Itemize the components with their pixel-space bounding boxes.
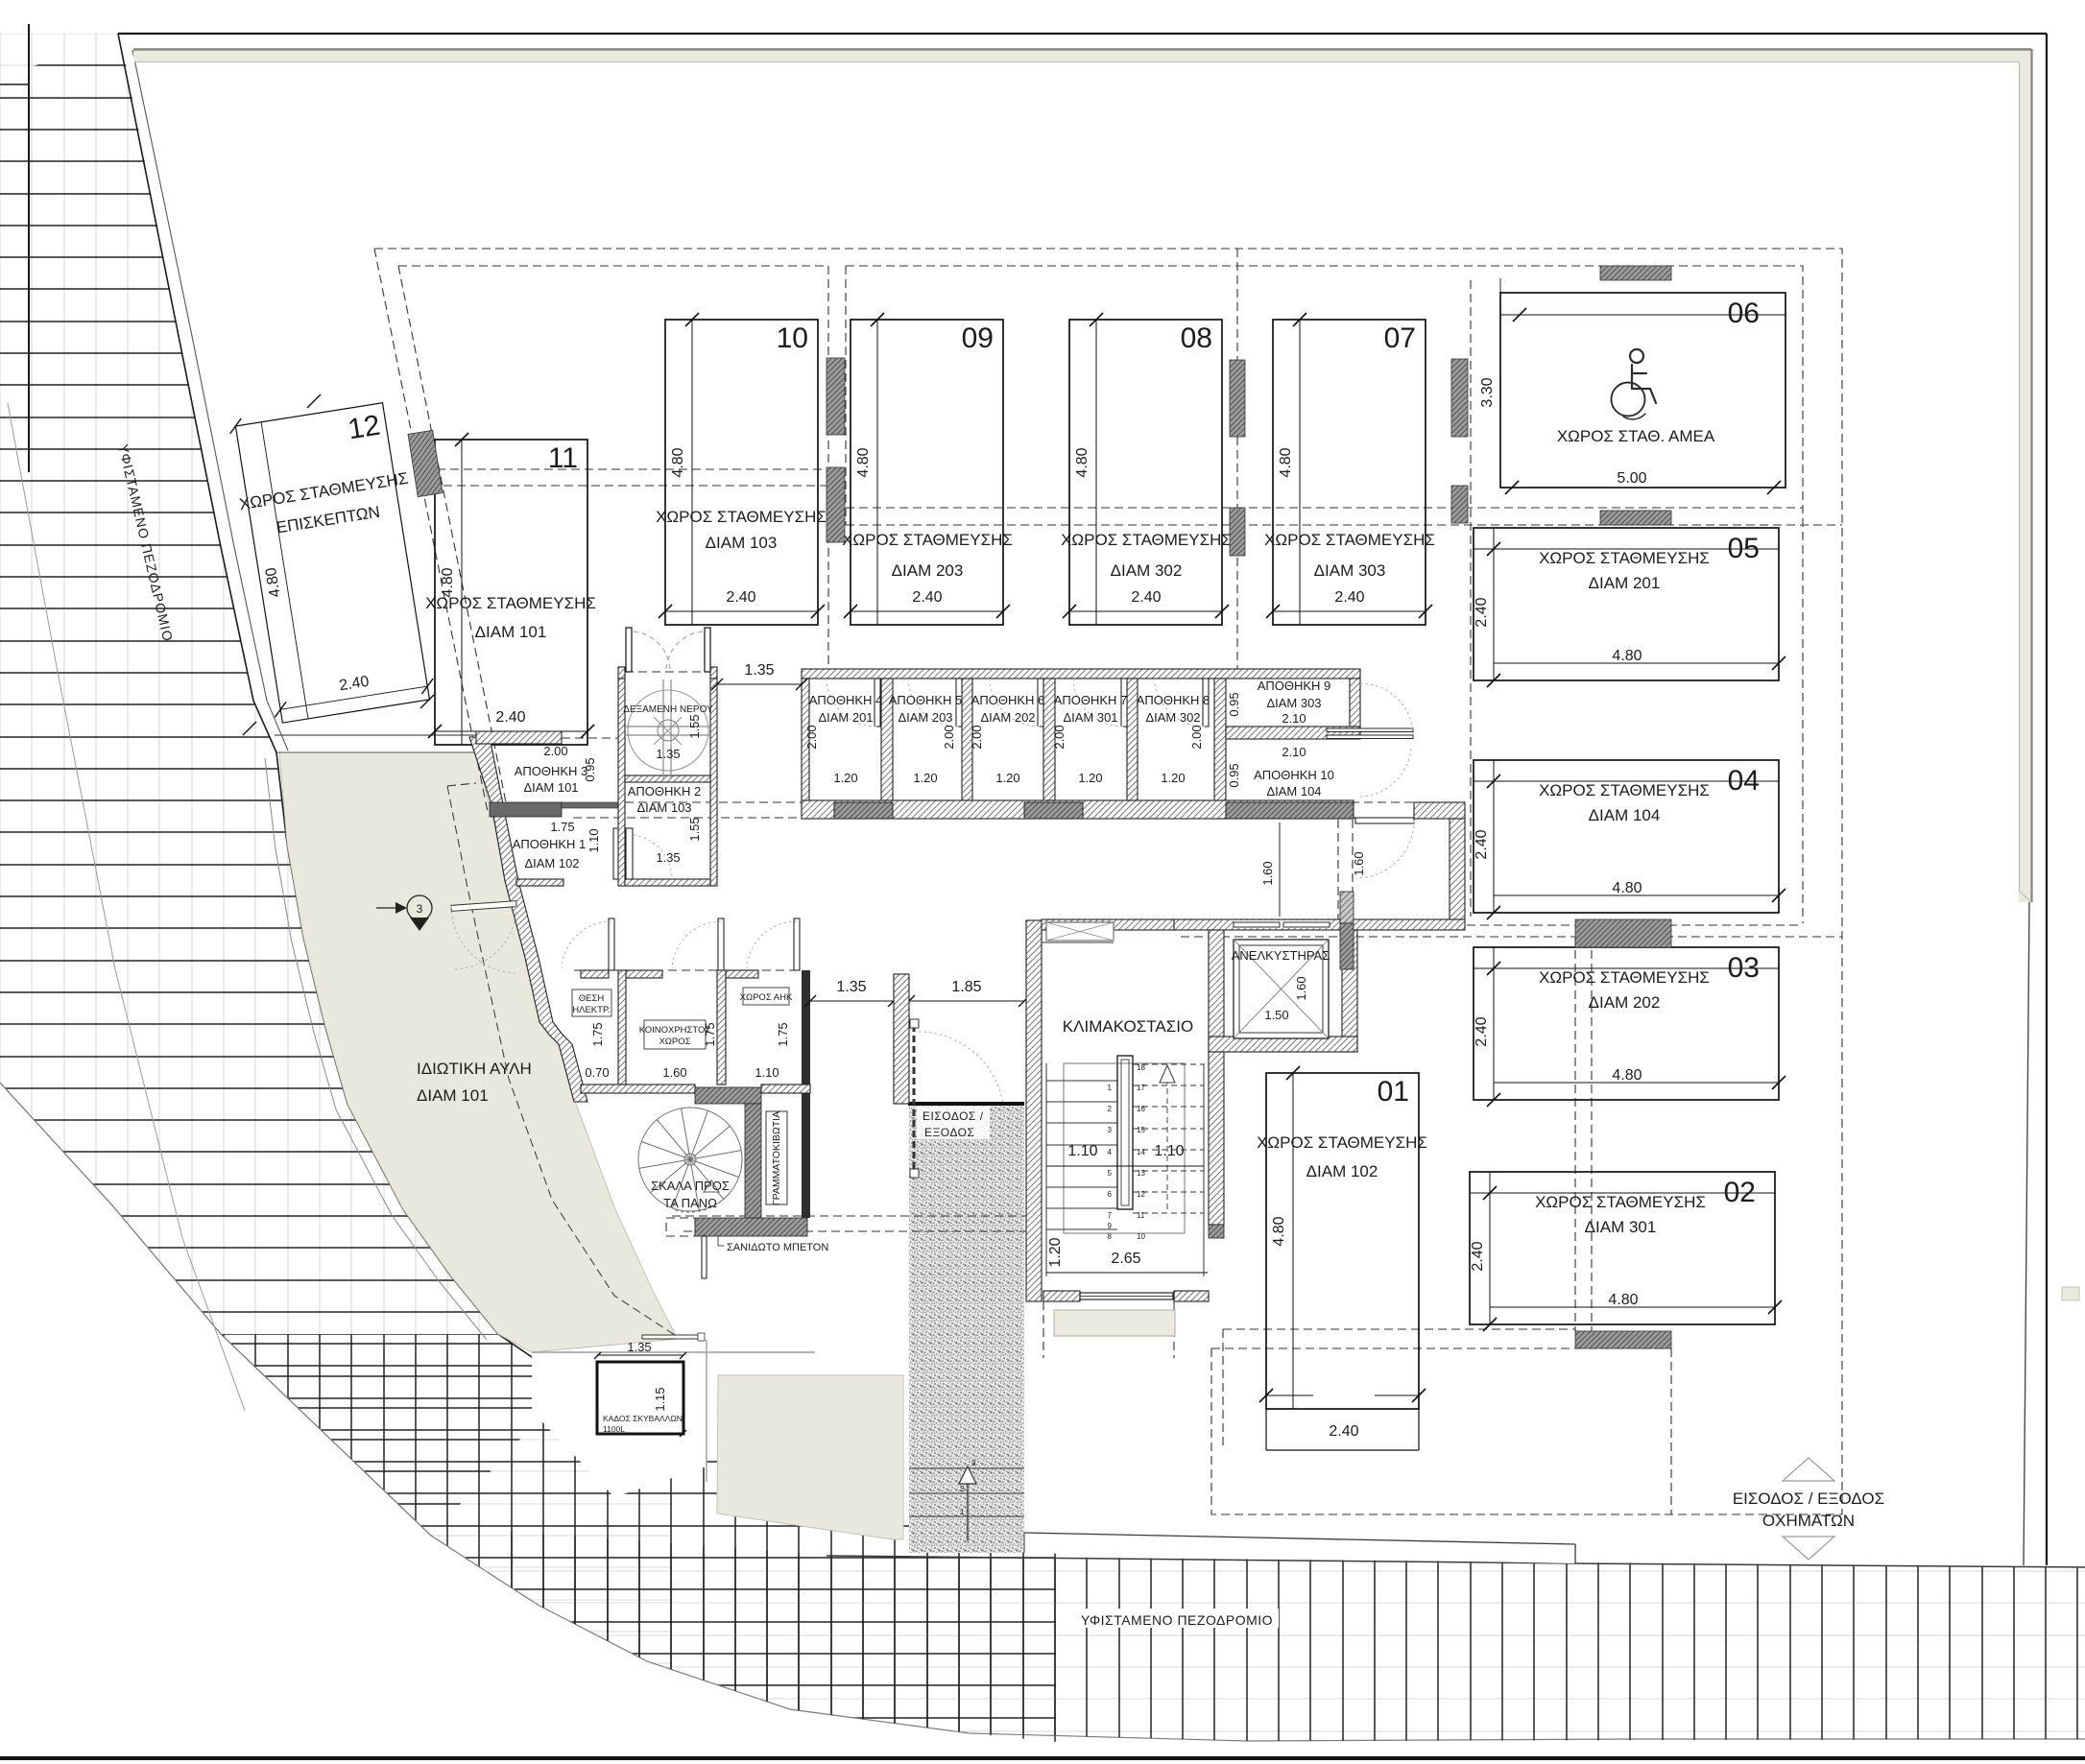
svg-text:1.60: 1.60 [1260,861,1275,885]
svg-text:1.10: 1.10 [755,1065,779,1080]
svg-text:2.40: 2.40 [1474,1016,1490,1046]
svg-text:11: 11 [1137,1211,1145,1220]
svg-text:ΥΦΙΣΤΑΜΕΝΟ ΠΕΖΟΔΡΟΜΙΟ: ΥΦΙΣΤΑΜΕΝΟ ΠΕΖΟΔΡΟΜΙΟ [1081,1612,1273,1628]
svg-text:3: 3 [417,902,423,916]
svg-text:2.40: 2.40 [912,589,942,606]
svg-text:ΔΙΑΜ 104: ΔΙΑΜ 104 [1266,784,1321,799]
svg-text:ΧΩΡΟΣ ΣΤΑΘΜΕΥΣΗΣ: ΧΩΡΟΣ ΣΤΑΘΜΕΥΣΗΣ [1535,1193,1706,1211]
svg-text:4.80: 4.80 [440,567,456,597]
svg-text:1.75: 1.75 [776,1022,790,1046]
svg-text:ΕΞΟΔΟΣ: ΕΞΟΔΟΣ [924,1126,974,1139]
svg-text:1.60: 1.60 [1294,976,1308,1000]
svg-text:1.35: 1.35 [836,979,866,995]
svg-text:ΔΙΑΜ 101: ΔΙΑΜ 101 [475,623,547,641]
svg-text:4.80: 4.80 [1271,1216,1287,1246]
svg-text:0.70: 0.70 [585,1065,609,1080]
svg-text:1.55: 1.55 [687,817,702,841]
svg-text:2.00: 2.00 [942,725,956,749]
svg-text:1.35: 1.35 [627,1340,651,1354]
svg-text:1.35: 1.35 [656,747,680,761]
svg-text:1.20: 1.20 [833,771,857,785]
svg-text:7: 7 [1108,1211,1113,1220]
svg-text:12: 12 [346,410,382,446]
svg-text:ΙΔΙΩΤΙΚΗ ΑΥΛΗ: ΙΔΙΩΤΙΚΗ ΑΥΛΗ [417,1060,532,1078]
svg-text:ΧΩΡΟΣ ΣΤΑΘΜΕΥΣΗΣ: ΧΩΡΟΣ ΣΤΑΘΜΕΥΣΗΣ [1539,781,1710,799]
svg-text:ΧΩΡΟΣ ΣΤΑΘΜΕΥΣΗΣ: ΧΩΡΟΣ ΣΤΑΘΜΕΥΣΗΣ [1257,1133,1427,1152]
svg-text:3.30: 3.30 [1479,377,1496,407]
svg-text:0.95: 0.95 [1227,692,1241,716]
svg-text:ΑΠΟΘΗΚΗ 2: ΑΠΟΘΗΚΗ 2 [628,784,702,799]
svg-text:1.10: 1.10 [1154,1143,1184,1159]
svg-text:ΔΙΑΜ 101: ΔΙΑΜ 101 [523,780,578,795]
svg-text:1.20: 1.20 [995,771,1019,785]
svg-text:ΘΕΣΗ: ΘΕΣΗ [579,993,605,1004]
svg-text:14: 14 [1137,1148,1145,1156]
svg-text:ΓΡΑΜΜΑΤΟΚΙΒΩΤΙΑ: ΓΡΑΜΜΑΤΟΚΙΒΩΤΙΑ [771,1111,782,1205]
svg-text:ΔΙΑΜ 302: ΔΙΑΜ 302 [1145,710,1200,725]
svg-text:4.80: 4.80 [1074,447,1090,477]
svg-text:ΔΙΑΜ 203: ΔΙΑΜ 203 [892,561,964,580]
svg-text:ΔΙΑΜ 102: ΔΙΑΜ 102 [1306,1162,1378,1180]
svg-text:1.35: 1.35 [744,662,774,679]
svg-text:1.85: 1.85 [951,979,981,995]
svg-text:ΔΙΑΜ 104: ΔΙΑΜ 104 [1589,806,1661,824]
svg-text:ΔΙΑΜ 301: ΔΙΑΜ 301 [1585,1218,1657,1236]
svg-text:4.80: 4.80 [855,447,872,477]
svg-text:18: 18 [1137,1063,1145,1072]
svg-text:4.80: 4.80 [1612,648,1642,664]
svg-text:ΑΠΟΘΗΚΗ 10: ΑΠΟΘΗΚΗ 10 [1254,768,1334,782]
svg-text:ΔΙΑΜ 303: ΔΙΑΜ 303 [1266,696,1321,710]
svg-text:2.40: 2.40 [1474,597,1490,627]
svg-text:ΔΙΑΜ 103: ΔΙΑΜ 103 [706,534,778,552]
svg-text:13: 13 [1137,1169,1145,1178]
svg-text:5: 5 [1108,1169,1113,1178]
svg-text:2.40: 2.40 [495,709,525,726]
svg-text:ΚΛΙΜΑΚΟΣΤΑΣΙΟ: ΚΛΙΜΑΚΟΣΤΑΣΙΟ [1063,1017,1193,1036]
svg-text:ΧΩΡΟΣ: ΧΩΡΟΣ [659,1037,690,1047]
svg-text:1.10: 1.10 [587,828,601,852]
svg-text:08: 08 [1181,322,1212,354]
svg-text:ΣΚΑΛΑ ΠΡΟΣ: ΣΚΑΛΑ ΠΡΟΣ [651,1179,730,1193]
svg-text:ΧΩΡΟΣ ΣΤΑΘ. ΑΜΕΑ: ΧΩΡΟΣ ΣΤΑΘ. ΑΜΕΑ [1557,427,1715,445]
svg-text:2.40: 2.40 [1470,1241,1486,1271]
svg-text:1.10: 1.10 [1067,1143,1097,1159]
svg-text:17: 17 [1137,1084,1145,1092]
svg-text:ΧΩΡΟΣ ΣΤΑΘΜΕΥΣΗΣ: ΧΩΡΟΣ ΣΤΑΘΜΕΥΣΗΣ [656,508,827,526]
svg-text:01: 01 [1378,1076,1409,1108]
svg-text:ΑΠΟΘΗΚΗ 7: ΑΠΟΘΗΚΗ 7 [1054,693,1128,707]
svg-text:6: 6 [1108,1190,1113,1199]
svg-text:06: 06 [1728,298,1760,329]
svg-text:ΔΙΑΜ 103: ΔΙΑΜ 103 [636,800,691,815]
svg-text:ΑΠΟΘΗΚΗ 8: ΑΠΟΘΗΚΗ 8 [1137,693,1210,707]
svg-text:2.65: 2.65 [1111,1251,1140,1267]
svg-text:ΑΠΟΘΗΚΗ 1: ΑΠΟΘΗΚΗ 1 [513,837,587,851]
svg-text:ΔΙΑΜ 102: ΔΙΑΜ 102 [524,856,579,870]
svg-text:ΔΙΑΜ 101: ΔΙΑΜ 101 [417,1086,489,1105]
svg-text:15: 15 [1137,1126,1145,1134]
svg-text:9: 9 [1108,1222,1113,1230]
svg-text:2.00: 2.00 [543,744,567,758]
svg-text:1.20: 1.20 [1161,771,1185,785]
svg-text:2.40: 2.40 [1131,589,1161,606]
svg-text:4.80: 4.80 [1612,880,1642,896]
svg-text:2.00: 2.00 [1052,725,1066,749]
svg-text:ΔΙΑΜ 202: ΔΙΑΜ 202 [1589,993,1661,1012]
svg-text:ΔΕΞΑΜΕΝΗ ΝΕΡΟΥ: ΔΕΞΑΜΕΝΗ ΝΕΡΟΥ [623,704,713,715]
svg-text:4.80: 4.80 [670,447,686,477]
svg-text:3: 3 [1108,1126,1113,1134]
svg-text:11: 11 [548,442,578,474]
svg-text:ΔΙΑΜ 302: ΔΙΑΜ 302 [1111,561,1183,580]
svg-text:12: 12 [1137,1190,1145,1199]
svg-text:ΔΙΑΜ 203: ΔΙΑΜ 203 [898,710,952,725]
svg-text:ΑΠΟΘΗΚΗ 5: ΑΠΟΘΗΚΗ 5 [889,693,963,707]
svg-text:04: 04 [1728,765,1760,797]
svg-text:ΣΑΝΙΔΩΤΟ ΜΠΕΤΟΝ: ΣΑΝΙΔΩΤΟ ΜΠΕΤΟΝ [727,1242,828,1253]
svg-text:1100L: 1100L [603,1424,625,1434]
svg-text:ΔΙΑΜ 201: ΔΙΑΜ 201 [1589,574,1661,592]
svg-text:1.20: 1.20 [1047,1237,1064,1267]
svg-text:2.40: 2.40 [726,589,755,606]
svg-text:2: 2 [1108,1105,1113,1113]
svg-text:4: 4 [1108,1148,1113,1156]
svg-text:2.40: 2.40 [1334,589,1364,606]
svg-text:2.10: 2.10 [1282,745,1306,759]
svg-text:2.40: 2.40 [1474,829,1490,859]
svg-text:1.75: 1.75 [703,1022,717,1046]
svg-text:09: 09 [962,322,994,354]
svg-text:ΗΛΕΚΤΡ.: ΗΛΕΚΤΡ. [572,1005,610,1015]
svg-text:1.20: 1.20 [913,771,937,785]
svg-text:1.35: 1.35 [656,850,680,865]
svg-text:ΕΙΣΟΔΟΣ / ΕΞΟΔΟΣ: ΕΙΣΟΔΟΣ / ΕΞΟΔΟΣ [1733,1490,1884,1508]
svg-text:ΧΩΡΟΣ ΑΗΚ: ΧΩΡΟΣ ΑΗΚ [740,992,793,1003]
svg-text:4.80: 4.80 [1278,447,1294,477]
svg-text:1.60: 1.60 [1352,851,1366,875]
svg-text:2: 2 [960,1485,965,1493]
svg-text:02: 02 [1724,1177,1756,1208]
svg-text:ΑΝΕΛΚΥΣΤΗΡΑΣ: ΑΝΕΛΚΥΣΤΗΡΑΣ [1232,948,1330,963]
svg-text:0.95: 0.95 [583,757,597,781]
svg-text:ΑΠΟΘΗΚΗ 9: ΑΠΟΘΗΚΗ 9 [1258,679,1331,693]
svg-text:3: 3 [971,1459,976,1467]
svg-text:2.40: 2.40 [1329,1423,1358,1440]
svg-text:ΔΙΑΜ 303: ΔΙΑΜ 303 [1314,561,1386,580]
svg-text:ΧΩΡΟΣ ΣΤΑΘΜΕΥΣΗΣ: ΧΩΡΟΣ ΣΤΑΘΜΕΥΣΗΣ [1539,549,1710,567]
svg-text:ΕΙΣΟΔΟΣ /: ΕΙΣΟΔΟΣ / [923,1109,984,1123]
svg-text:03: 03 [1728,952,1760,984]
svg-text:ΚΑΔΟΣ ΣΚΥΒΑΛΛΩΝ: ΚΑΔΟΣ ΣΚΥΒΑΛΛΩΝ [603,1414,683,1423]
svg-text:10: 10 [777,322,808,354]
svg-text:05: 05 [1728,533,1760,564]
svg-text:ΔΙΑΜ 201: ΔΙΑΜ 201 [818,710,873,725]
svg-text:ΔΙΑΜ 202: ΔΙΑΜ 202 [980,710,1035,725]
svg-text:ΚΟΙΝΟΧΡΗΣΤΟΣ: ΚΟΙΝΟΧΡΗΣΤΟΣ [639,1025,711,1036]
svg-text:1.55: 1.55 [687,714,702,738]
svg-text:4.80: 4.80 [1612,1067,1642,1084]
svg-text:1.75: 1.75 [550,820,574,834]
svg-text:16: 16 [1137,1105,1145,1113]
svg-text:1.15: 1.15 [653,1387,667,1411]
svg-text:ΟΧΗΜΑΤΩΝ: ΟΧΗΜΑΤΩΝ [1762,1512,1855,1530]
svg-text:ΔΙΑΜ 301: ΔΙΑΜ 301 [1063,710,1117,725]
svg-text:2.10: 2.10 [1282,711,1306,726]
svg-text:ΧΩΡΟΣ ΣΤΑΘΜΕΥΣΗΣ: ΧΩΡΟΣ ΣΤΑΘΜΕΥΣΗΣ [1264,531,1435,549]
svg-text:1.60: 1.60 [662,1065,686,1080]
svg-text:07: 07 [1384,322,1416,354]
svg-text:2.00: 2.00 [970,725,984,749]
svg-text:ΑΠΟΘΗΚΗ 4: ΑΠΟΘΗΚΗ 4 [809,693,883,707]
svg-text:0.95: 0.95 [1227,763,1241,787]
svg-text:1.20: 1.20 [1078,771,1102,785]
svg-text:2.00: 2.00 [1189,725,1204,749]
svg-text:5.00: 5.00 [1617,470,1646,487]
svg-text:ΧΩΡΟΣ ΣΤΑΘΜΕΥΣΗΣ: ΧΩΡΟΣ ΣΤΑΘΜΕΥΣΗΣ [1061,531,1232,549]
svg-text:ΤΑ ΠΑΝΩ: ΤΑ ΠΑΝΩ [663,1196,717,1210]
svg-text:ΧΩΡΟΣ ΣΤΑΘΜΕΥΣΗΣ: ΧΩΡΟΣ ΣΤΑΘΜΕΥΣΗΣ [842,531,1013,549]
svg-text:2.00: 2.00 [804,725,819,749]
svg-text:ΑΠΟΘΗΚΗ 6: ΑΠΟΘΗΚΗ 6 [971,693,1045,707]
svg-text:4.80: 4.80 [1608,1292,1638,1308]
svg-text:1.50: 1.50 [1264,1008,1288,1022]
svg-text:ΑΠΟΘΗΚΗ 3: ΑΠΟΘΗΚΗ 3 [515,764,588,778]
svg-text:1.75: 1.75 [590,1022,605,1046]
svg-text:1: 1 [960,1508,965,1516]
svg-text:ΧΩΡΟΣ ΣΤΑΘΜΕΥΣΗΣ: ΧΩΡΟΣ ΣΤΑΘΜΕΥΣΗΣ [1539,968,1710,987]
svg-text:1: 1 [1108,1084,1113,1092]
